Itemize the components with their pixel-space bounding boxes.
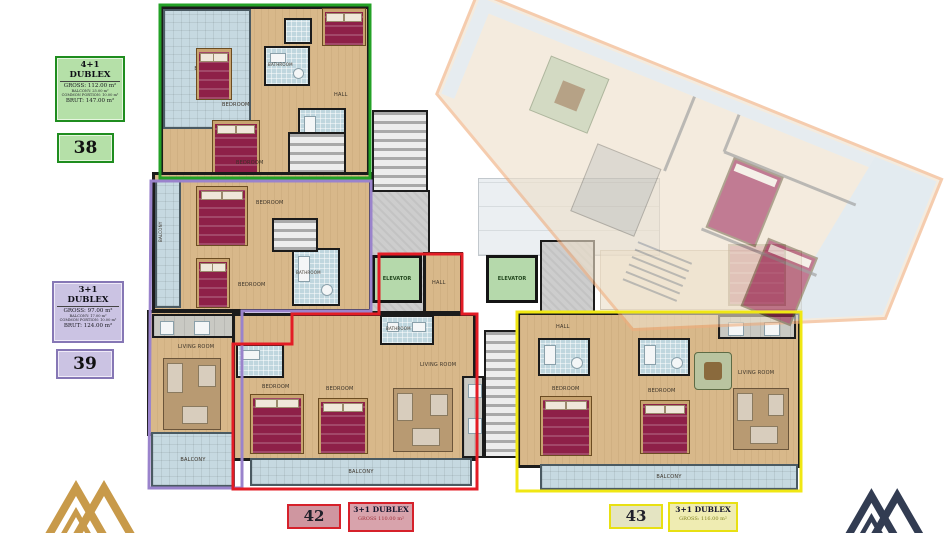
unit-43-kitchen [718, 315, 796, 339]
faded-bed-1-pillow [734, 163, 778, 187]
unit-39-type: 3+1 DUBLEX [57, 283, 119, 307]
unit-39-sofa [163, 358, 221, 430]
unit-38-type: 4+1 DUBLEX [60, 58, 120, 82]
mountain-logo-navy-icon [844, 496, 925, 533]
unit-43-bathroom-1 [538, 338, 590, 376]
room-label-living: LIVING ROOM [178, 344, 214, 350]
mountain-logo-gold-icon [46, 488, 134, 533]
unit-43-sofa [733, 388, 789, 450]
room-label-bathroom: BATHROOM [296, 270, 321, 275]
room-label-bedroom: BEDROOM [236, 160, 264, 166]
unit-42-bed-1 [250, 394, 304, 454]
unit-39-bed-1 [196, 186, 248, 246]
unit-42-bed-2 [318, 398, 368, 454]
unit-43-bathroom-2 [638, 338, 690, 376]
elevator-2: ELEVATOR [486, 255, 538, 303]
unit-42-bathroom-1 [236, 344, 284, 378]
unit-39-common-area: COMMON PORTION: 10.00 m² [54, 318, 122, 322]
unit-42-info-card: 3+1 DUBLEX GROSS 110.00 m² [348, 502, 414, 532]
unit-38-number-button[interactable]: 38 [57, 133, 114, 163]
unit-43-dining-table [694, 352, 732, 390]
faded-terrace-left [441, 0, 493, 99]
room-label-bathroom: BATHROOM [268, 62, 293, 67]
unit-39-balcony-lower: BALCONY [151, 432, 235, 487]
unit-43-bed-1 [540, 396, 592, 456]
balcony-label: BALCONY [158, 221, 163, 242]
unit-39-stairs [272, 218, 318, 252]
room-label-bedroom: BEDROOM [238, 282, 266, 288]
unit-42-type: 3+1 DUBLEX [350, 504, 412, 516]
unit-39-brut: BRUT: 124.00 m² [54, 323, 122, 329]
unit-39-number-button[interactable]: 39 [56, 349, 114, 379]
room-label-living: LIVING ROOM [738, 370, 774, 376]
room-label-bedroom: BEDROOM [552, 386, 580, 392]
room-label-bedroom: BEDROOM [262, 384, 290, 390]
unit-42-sofa [393, 388, 453, 452]
room-label-bathroom: BATHROOM [386, 326, 411, 331]
unit-38-bed-1 [322, 8, 366, 46]
room-label-hall: HALL [334, 92, 348, 98]
unit-43-bed-2 [640, 400, 690, 454]
unit-42-gross: GROSS 110.00 m² [350, 516, 412, 522]
corridor-right [540, 240, 595, 313]
room-label-living: LIVING ROOM [420, 362, 456, 368]
elevator-2-label: ELEVATOR [498, 276, 527, 282]
unit-42-number-button[interactable]: 42 [287, 504, 341, 529]
faded-terrace-top [476, 0, 937, 193]
unit-38-common-area: COMMON PORTION: 10.00 m² [57, 93, 123, 97]
balcony-label: BALCONY [348, 469, 373, 475]
unit-38-bathroom-small [284, 18, 312, 44]
room-label-bedroom: BEDROOM [256, 200, 284, 206]
unit-43-balcony: BALCONY [540, 464, 798, 490]
unit-43-type: 3+1 DUBLEX [670, 504, 736, 516]
unit-39-kitchen [152, 314, 240, 338]
unit-38-stairs [288, 132, 346, 177]
balcony-label: BALCONY [180, 457, 205, 463]
elevator-1: ELEVATOR [372, 255, 422, 303]
unit-38-bed-3 [212, 120, 260, 176]
unit-39-bathroom [292, 248, 340, 306]
room-label-hall: HALL [432, 280, 446, 286]
unit-42-balcony: BALCONY [250, 458, 472, 486]
unit-43-info-card: 3+1 DUBLEX GROSS: 116.00 m² [668, 502, 738, 532]
faded-bed [728, 244, 786, 306]
unit-39-balcony-left: BALCONY [155, 180, 181, 308]
unit-38-brut: BRUT: 147.00 m² [57, 98, 123, 104]
unit-38-bed-2 [196, 48, 232, 100]
room-label-bedroom: BEDROOM [222, 102, 250, 108]
unit-39-bed-2 [196, 258, 230, 308]
unit-43-number-button[interactable]: 43 [609, 504, 663, 529]
unit-38-info-card: 4+1 DUBLEX GROSS: 112.00 m² BALCONY: 25.… [55, 56, 125, 122]
elevator-1-label: ELEVATOR [383, 276, 412, 282]
unit-39-info-card: 3+1 DUBLEX GROSS: 97.00 m² BALCONY: 17.0… [52, 281, 124, 343]
faded-bed-1 [707, 158, 783, 246]
room-label-hall: HALL [556, 324, 570, 330]
room-label-bedroom: BEDROOM [326, 386, 354, 392]
faded-dining-table [530, 56, 609, 133]
faded-dining-top [554, 80, 585, 111]
unit-43-gross: GROSS: 116.00 m² [670, 516, 736, 522]
room-label-bedroom: BEDROOM [648, 388, 676, 394]
unit-42-kitchen [462, 376, 484, 458]
balcony-label: BALCONY [656, 474, 681, 480]
floor-plan-canvas: BALCONY ELEVATOR ELEVATOR BALCONY [0, 0, 951, 533]
core-stairs-top [372, 110, 428, 192]
